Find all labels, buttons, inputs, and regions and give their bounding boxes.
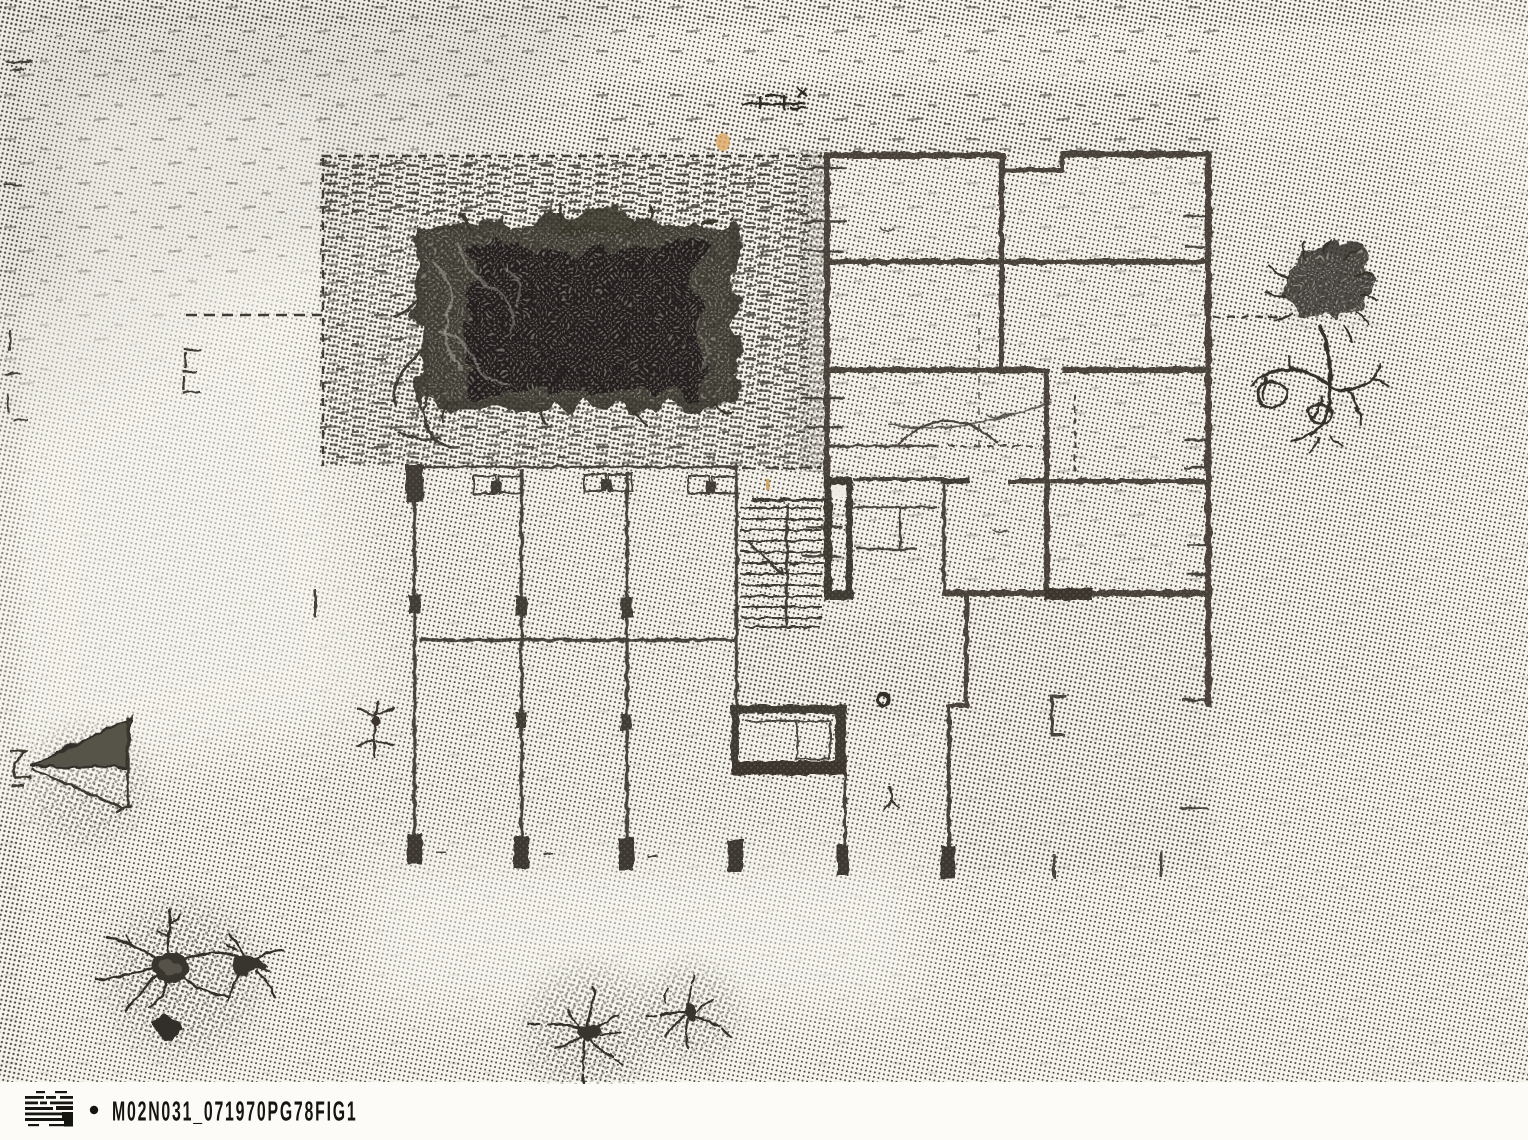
svg-text:M02N031_071970PG78FIG1: M02N031_071970PG78FIG1 [112,1095,358,1127]
